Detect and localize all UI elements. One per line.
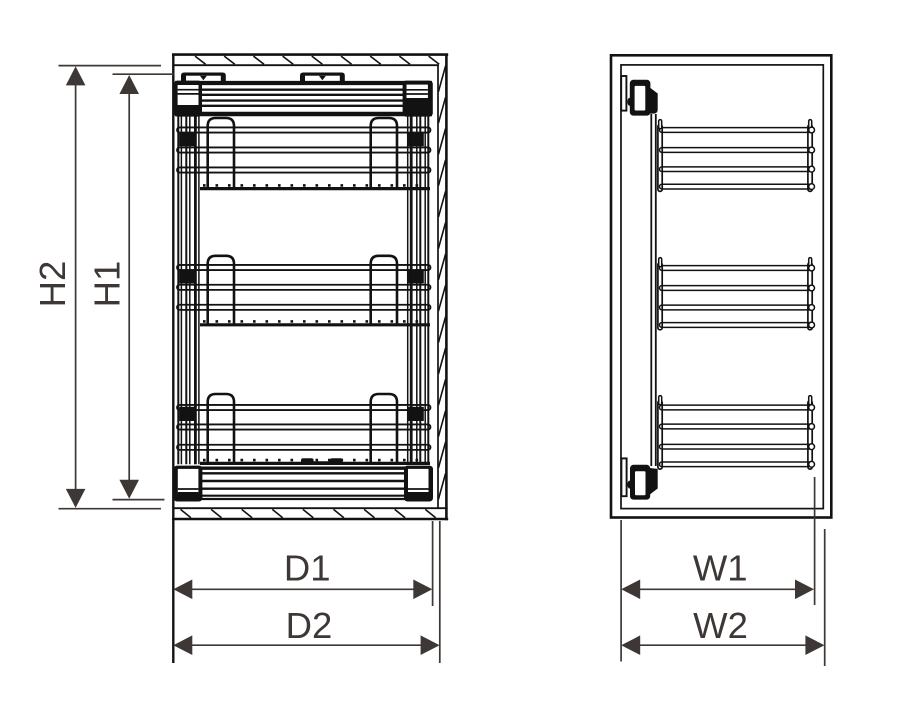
svg-text:W1: W1 [693, 548, 748, 589]
svg-text:H2: H2 [32, 261, 73, 308]
svg-text:H1: H1 [86, 261, 127, 308]
svg-text:D2: D2 [286, 605, 333, 646]
svg-text:W2: W2 [693, 605, 748, 646]
svg-text:D1: D1 [284, 548, 331, 589]
